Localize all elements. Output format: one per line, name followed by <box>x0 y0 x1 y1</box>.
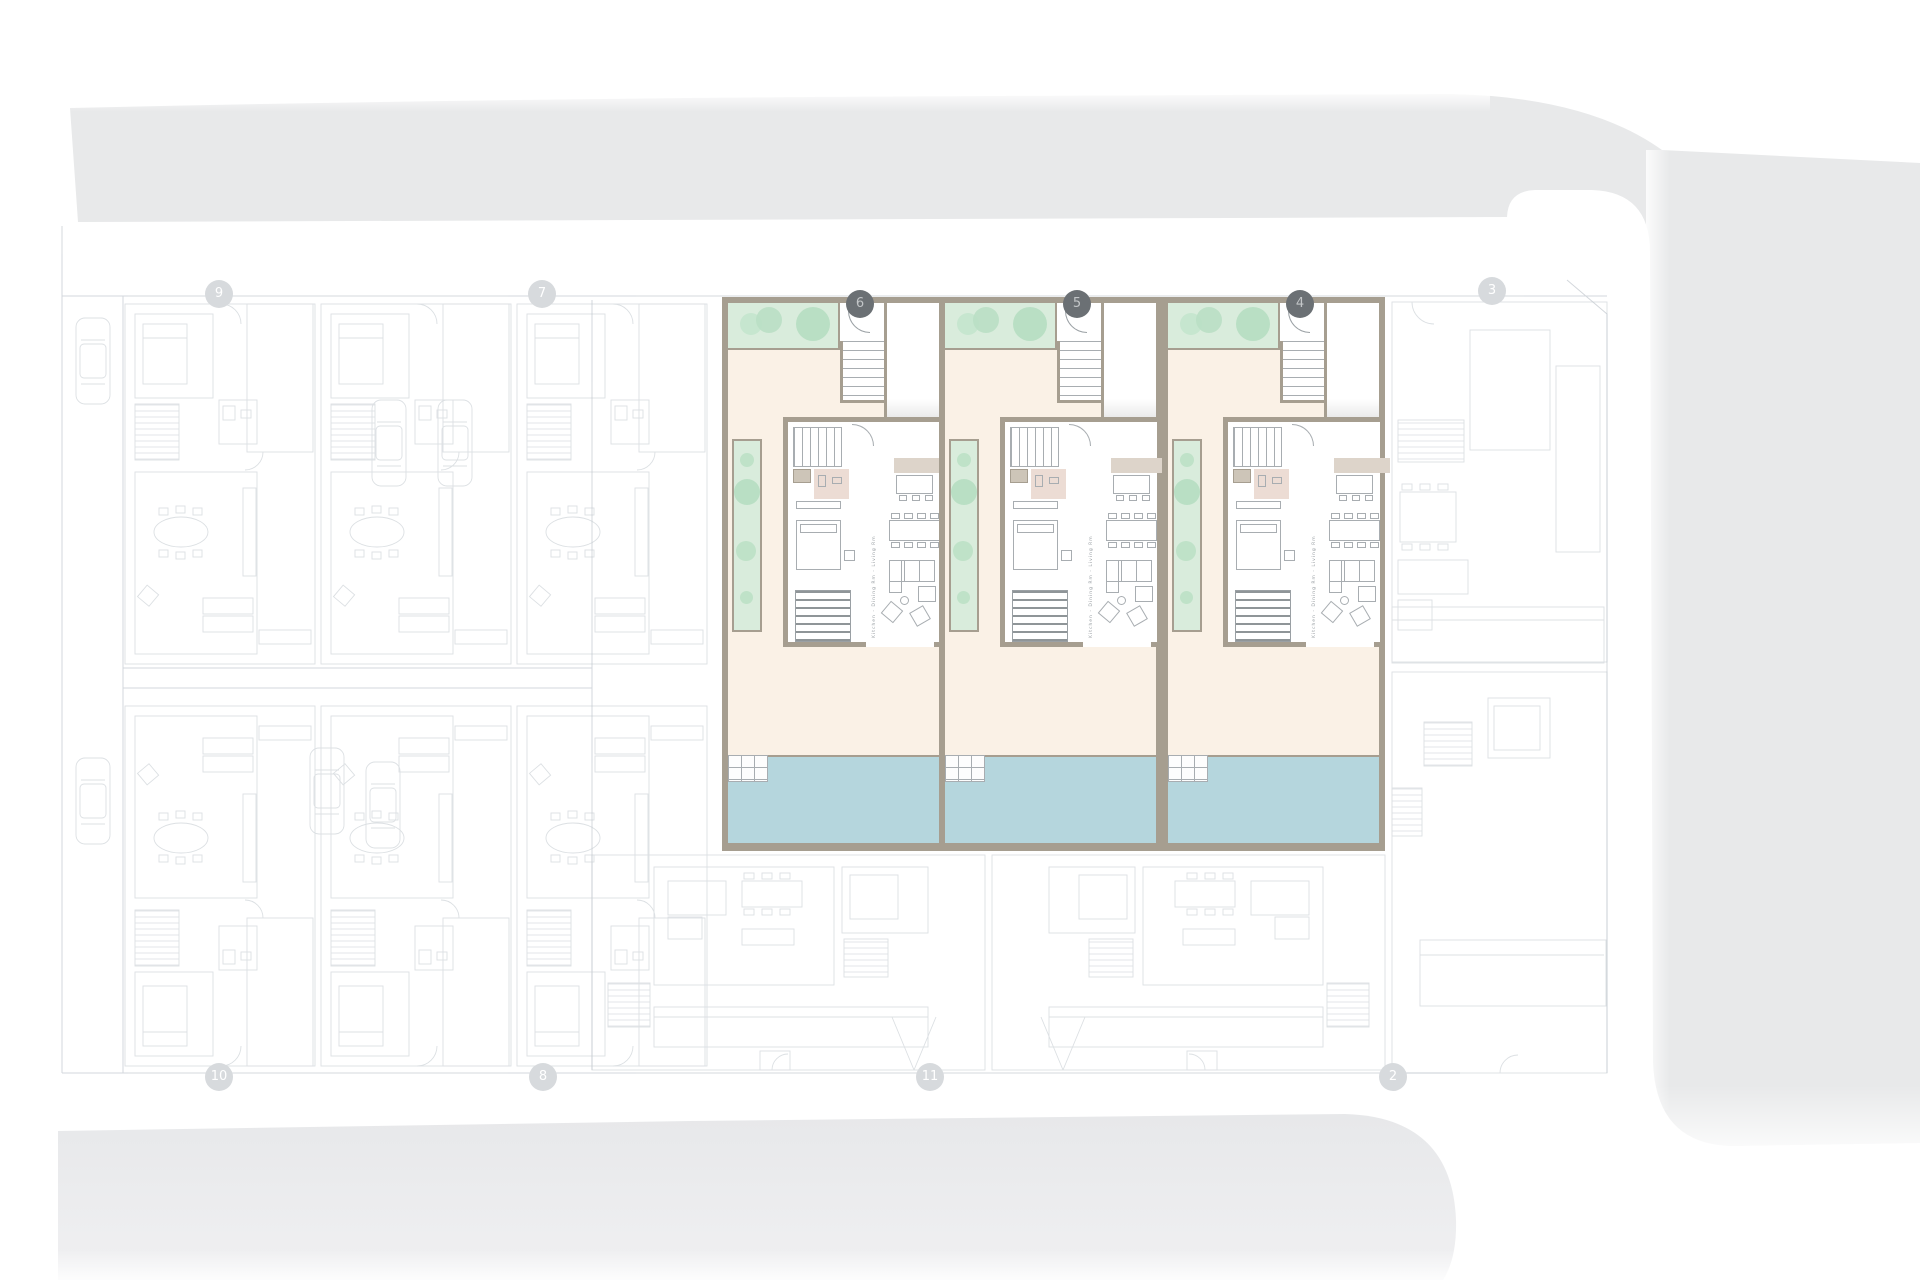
unit-marker[interactable]: 7 <box>528 280 556 308</box>
unit-marker[interactable]: 11 <box>916 1063 944 1091</box>
unit-marker[interactable]: 10 <box>205 1063 233 1091</box>
unit-marker[interactable]: 2 <box>1379 1063 1407 1091</box>
unit-marker[interactable]: 8 <box>529 1063 557 1091</box>
unit-marker[interactable]: 9 <box>205 280 233 308</box>
unit-marker[interactable]: 3 <box>1478 277 1506 305</box>
site-plan-canvas: 6 <box>0 0 1920 1280</box>
